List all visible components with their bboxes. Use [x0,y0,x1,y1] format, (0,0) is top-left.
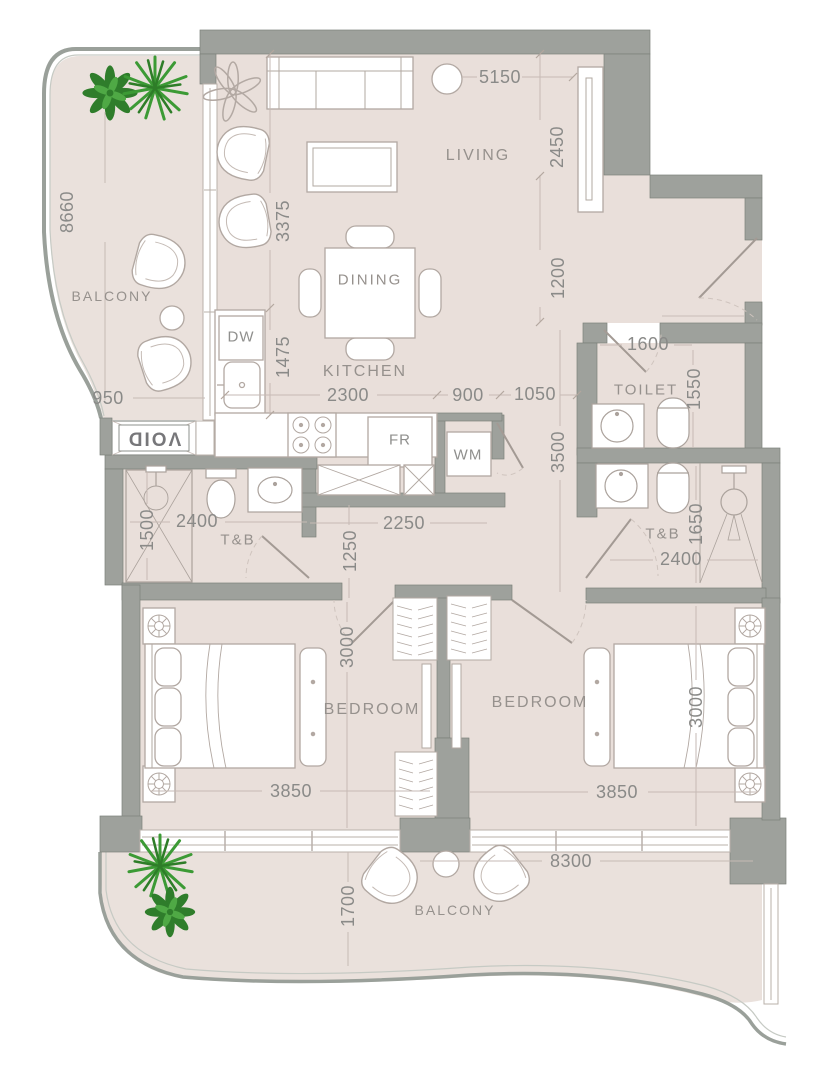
dim-balcony-bottom-depth: 1700 [339,885,357,927]
dim-entry-width: 1050 [514,385,556,403]
stove [288,413,336,457]
dim-balcony-neck: 950 [92,389,124,407]
wardrobe-panel [452,664,461,748]
room-label-living: LIVING [446,148,510,164]
dim-balcony-bottom-width: 8300 [550,852,592,870]
room-label-bedroom-left: BEDROOM [324,702,421,718]
void-label: VOID [127,429,181,448]
dim-bedroom-left-width: 3850 [270,782,312,800]
room-label-tb-left: T&B [220,533,255,548]
tv-console [578,67,603,212]
dim-living-width: 5150 [479,68,521,86]
balcony-table [160,306,184,330]
dim-tb-left-width: 2400 [176,512,218,530]
hall-cabinet-right [404,465,434,495]
toilet-tb-right [657,463,689,513]
dining-table [325,248,415,338]
room-label-balcony-top: BALCONY [72,289,153,303]
dim-tb-left-depth: 1500 [138,509,156,551]
washing-machine-label: WM [454,448,483,463]
dim-bedroom-right-width: 3850 [596,783,638,801]
fridge-label: FR [389,433,411,448]
balcony-table [433,851,459,877]
room-label-bedroom-right: BEDROOM [492,695,589,711]
kitchen-sink [217,362,260,408]
dim-bedroom-right-depth: 3000 [687,686,705,728]
sink-toilet-room [592,404,644,448]
dim-living-depth-upper: 2450 [548,126,566,168]
floor-plan: LIVING DINING KITCHEN TOILET T&B T&B BED… [0,0,818,1080]
dim-kitchen-counter-depth: 1475 [274,336,292,378]
room-label-toilet: TOILET [614,383,678,398]
room-label-kitchen: KITCHEN [323,364,407,380]
dim-toilet-depth: 1550 [685,368,703,410]
sofa [267,57,413,109]
room-label-dining: DINING [338,273,403,288]
dim-tb-right-depth: 1650 [687,503,705,545]
plant-bush-icon [145,887,195,937]
dim-living-depth-lower: 1200 [549,257,567,299]
room-label-tb-right: T&B [645,527,680,542]
dim-bedroom-left-depth: 3000 [338,626,356,668]
dim-corridor-length: 3500 [549,431,567,473]
sink-tb-right [596,464,648,508]
dim-passage-width: 900 [452,386,484,404]
dim-tb-right-width: 2400 [660,550,702,568]
dim-toilet-width: 1600 [627,335,669,353]
dim-balcony-left-length: 8660 [58,191,76,233]
dim-kitchen-width: 2300 [327,386,369,404]
dim-living-left-depth: 3375 [274,200,292,242]
sink-tb-left [248,468,302,512]
balcony-right-window [764,884,778,1004]
wardrobe-panel [422,664,431,748]
coffee-table [307,142,397,192]
dim-hall-depth: 1250 [341,530,359,572]
dishwasher-label: DW [228,330,255,345]
side-table [432,64,462,94]
room-label-balcony-bottom: BALCONY [415,903,496,917]
dim-hall-width: 2250 [383,514,425,532]
balcony-bottom-floor [100,852,762,1003]
hall-cabinet-left [318,465,400,495]
bed-bench [300,648,326,766]
